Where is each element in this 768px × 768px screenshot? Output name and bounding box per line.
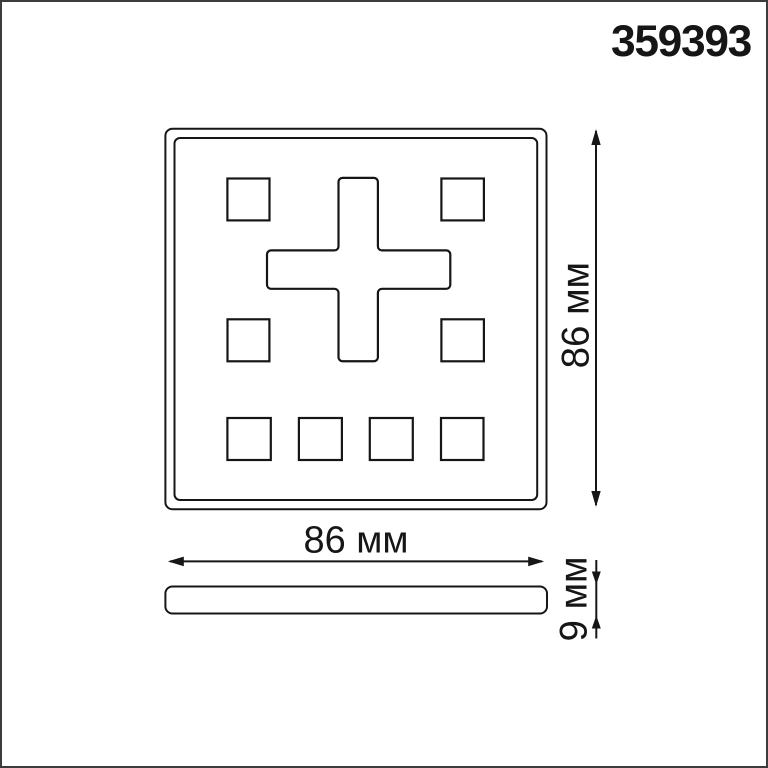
svg-text:86 мм: 86 мм xyxy=(303,520,408,562)
svg-text:86 мм: 86 мм xyxy=(555,262,598,368)
svg-text:9 мм: 9 мм xyxy=(553,556,596,641)
svg-text:359393: 359393 xyxy=(611,17,752,66)
